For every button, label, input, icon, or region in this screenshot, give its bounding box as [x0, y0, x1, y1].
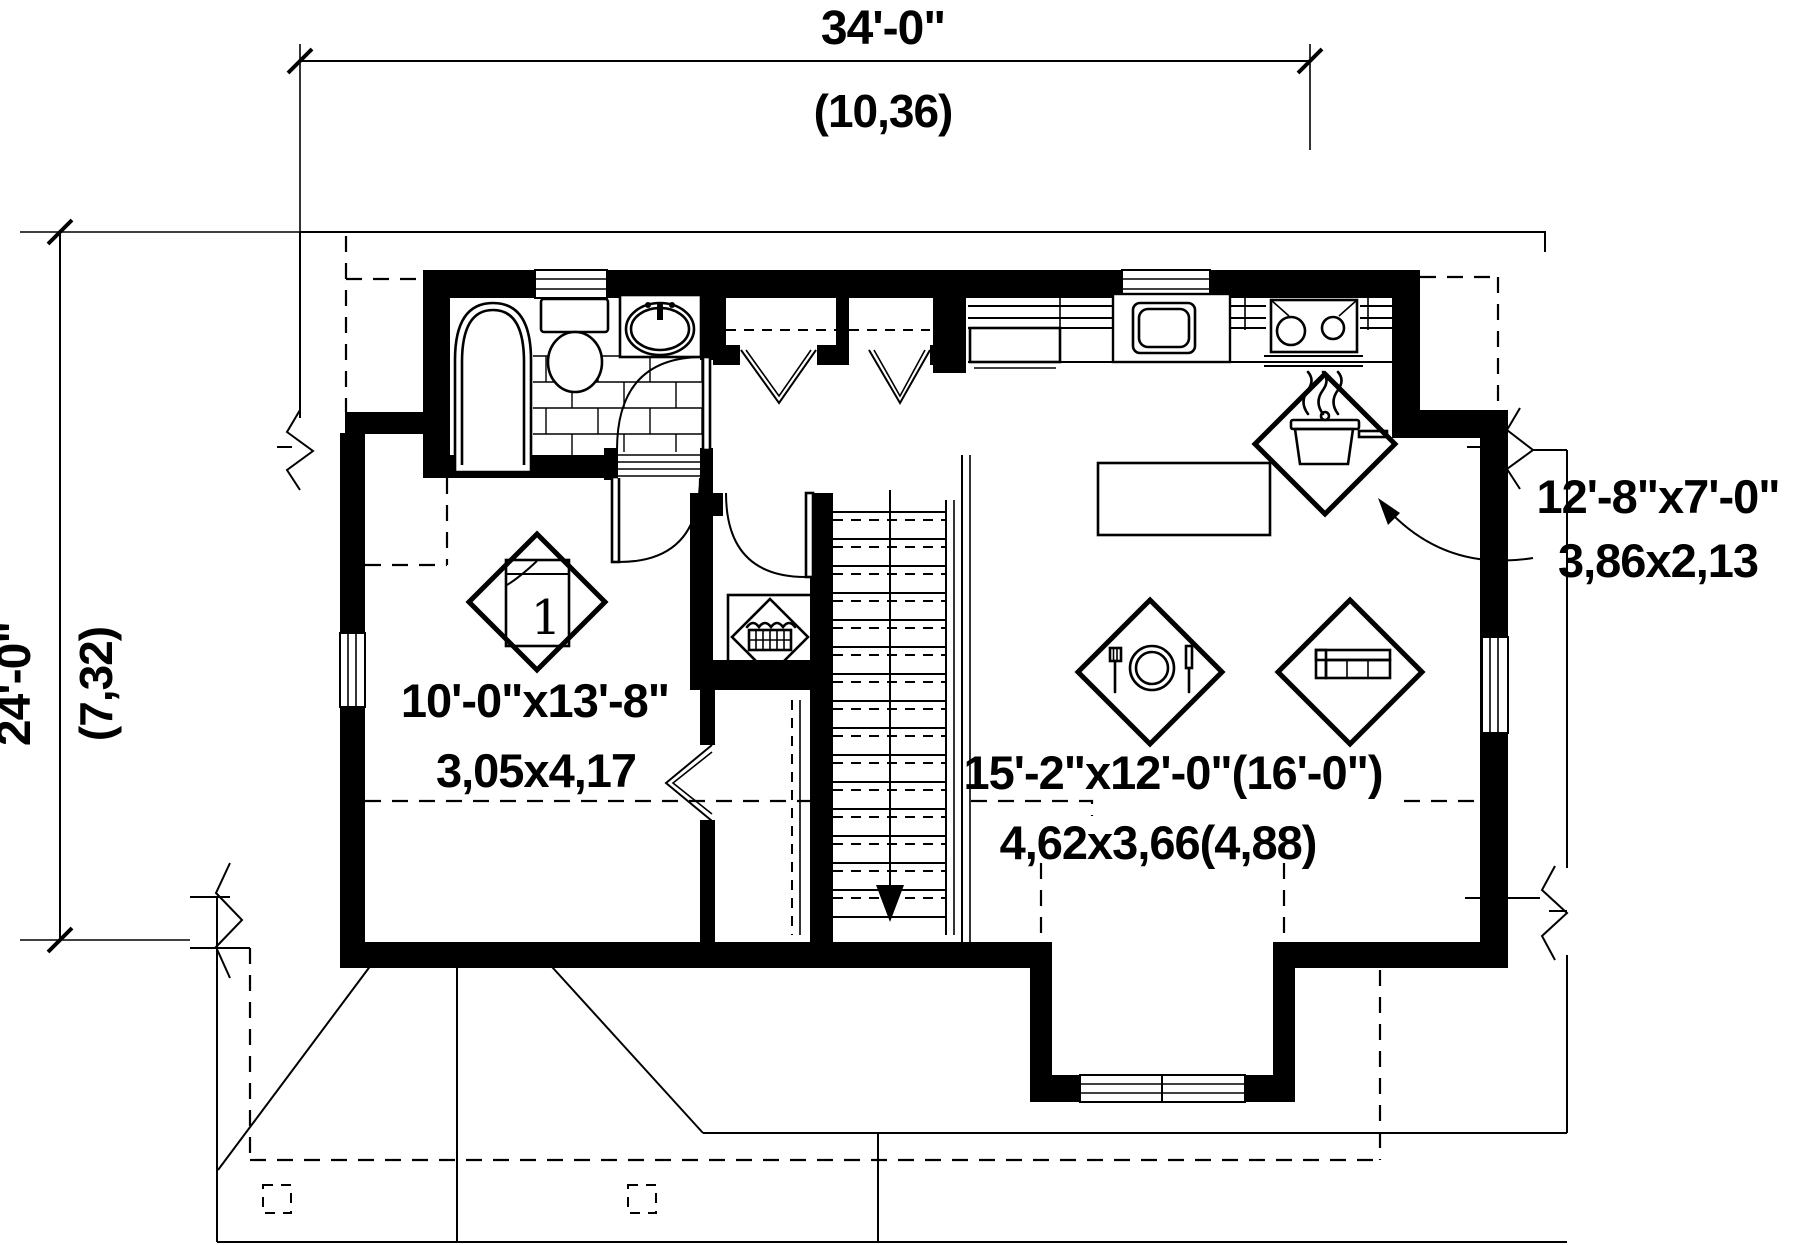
dining-plate-icon [1078, 600, 1222, 744]
living-size-feet: 15'-2"x12'-0"(16'-0") [963, 746, 1382, 799]
porch-post [263, 1185, 291, 1213]
bathroom-door [617, 357, 710, 450]
closet-bifold-door [869, 350, 930, 403]
stairs [833, 455, 970, 942]
break-line-icon [1542, 866, 1567, 960]
bedroom-window [340, 633, 365, 707]
bedroom-closet-bifold-door [666, 745, 712, 821]
nook-window [1080, 1075, 1245, 1102]
break-line-icon [216, 863, 242, 978]
break-line-icon [287, 410, 313, 490]
kitchen-size-meters: 3,86x2,13 [1558, 534, 1758, 587]
dimension-left: 24'-0" (7,32) [0, 220, 300, 952]
bathroom [455, 295, 708, 472]
bathtub-icon [455, 303, 531, 472]
stove-icon [1264, 298, 1363, 366]
roof-hip-line [218, 957, 377, 1170]
bedroom-size-feet: 10'-0"x13'-8" [401, 674, 669, 727]
living-window [1482, 637, 1508, 733]
porch-post [628, 1185, 656, 1213]
width-dimension-meters: (10,36) [814, 85, 953, 137]
depth-dimension-meters: (7,32) [70, 627, 122, 741]
kitchen-label-arrow [1378, 498, 1533, 561]
kitchen-size-feet: 12'-8"x7'-0" [1536, 470, 1779, 523]
floor-plan-drawing: 1 [0, 0, 1800, 1245]
bedroom-number: 1 [531, 590, 562, 646]
depth-dimension-feet: 24'-0" [0, 622, 41, 746]
bathroom-window [535, 270, 607, 298]
kitchen-sink-icon [1113, 294, 1230, 362]
toilet-icon [541, 299, 608, 392]
sofa-icon [1278, 600, 1422, 744]
roof-hip-line [543, 957, 703, 1133]
laundry-door [726, 493, 813, 577]
floor-plan-page: 1 [0, 0, 1800, 1245]
bed-icon: 1 [469, 534, 605, 670]
closet-bifold-door [741, 350, 816, 403]
bedroom-size-meters: 3,05x4,17 [436, 744, 636, 797]
kitchen-island [1098, 463, 1270, 535]
width-dimension-feet: 34'-0" [821, 2, 945, 55]
cooking-pot-icon [1255, 372, 1395, 514]
bedroom-door [612, 452, 700, 562]
living-size-meters: 4,62x3,66(4,88) [1000, 816, 1317, 869]
doors [612, 330, 930, 935]
dimension-top: 34'-0" (10,36) [288, 2, 1322, 232]
break-line-icon [1507, 408, 1533, 489]
bathroom-sink-icon [620, 295, 701, 357]
